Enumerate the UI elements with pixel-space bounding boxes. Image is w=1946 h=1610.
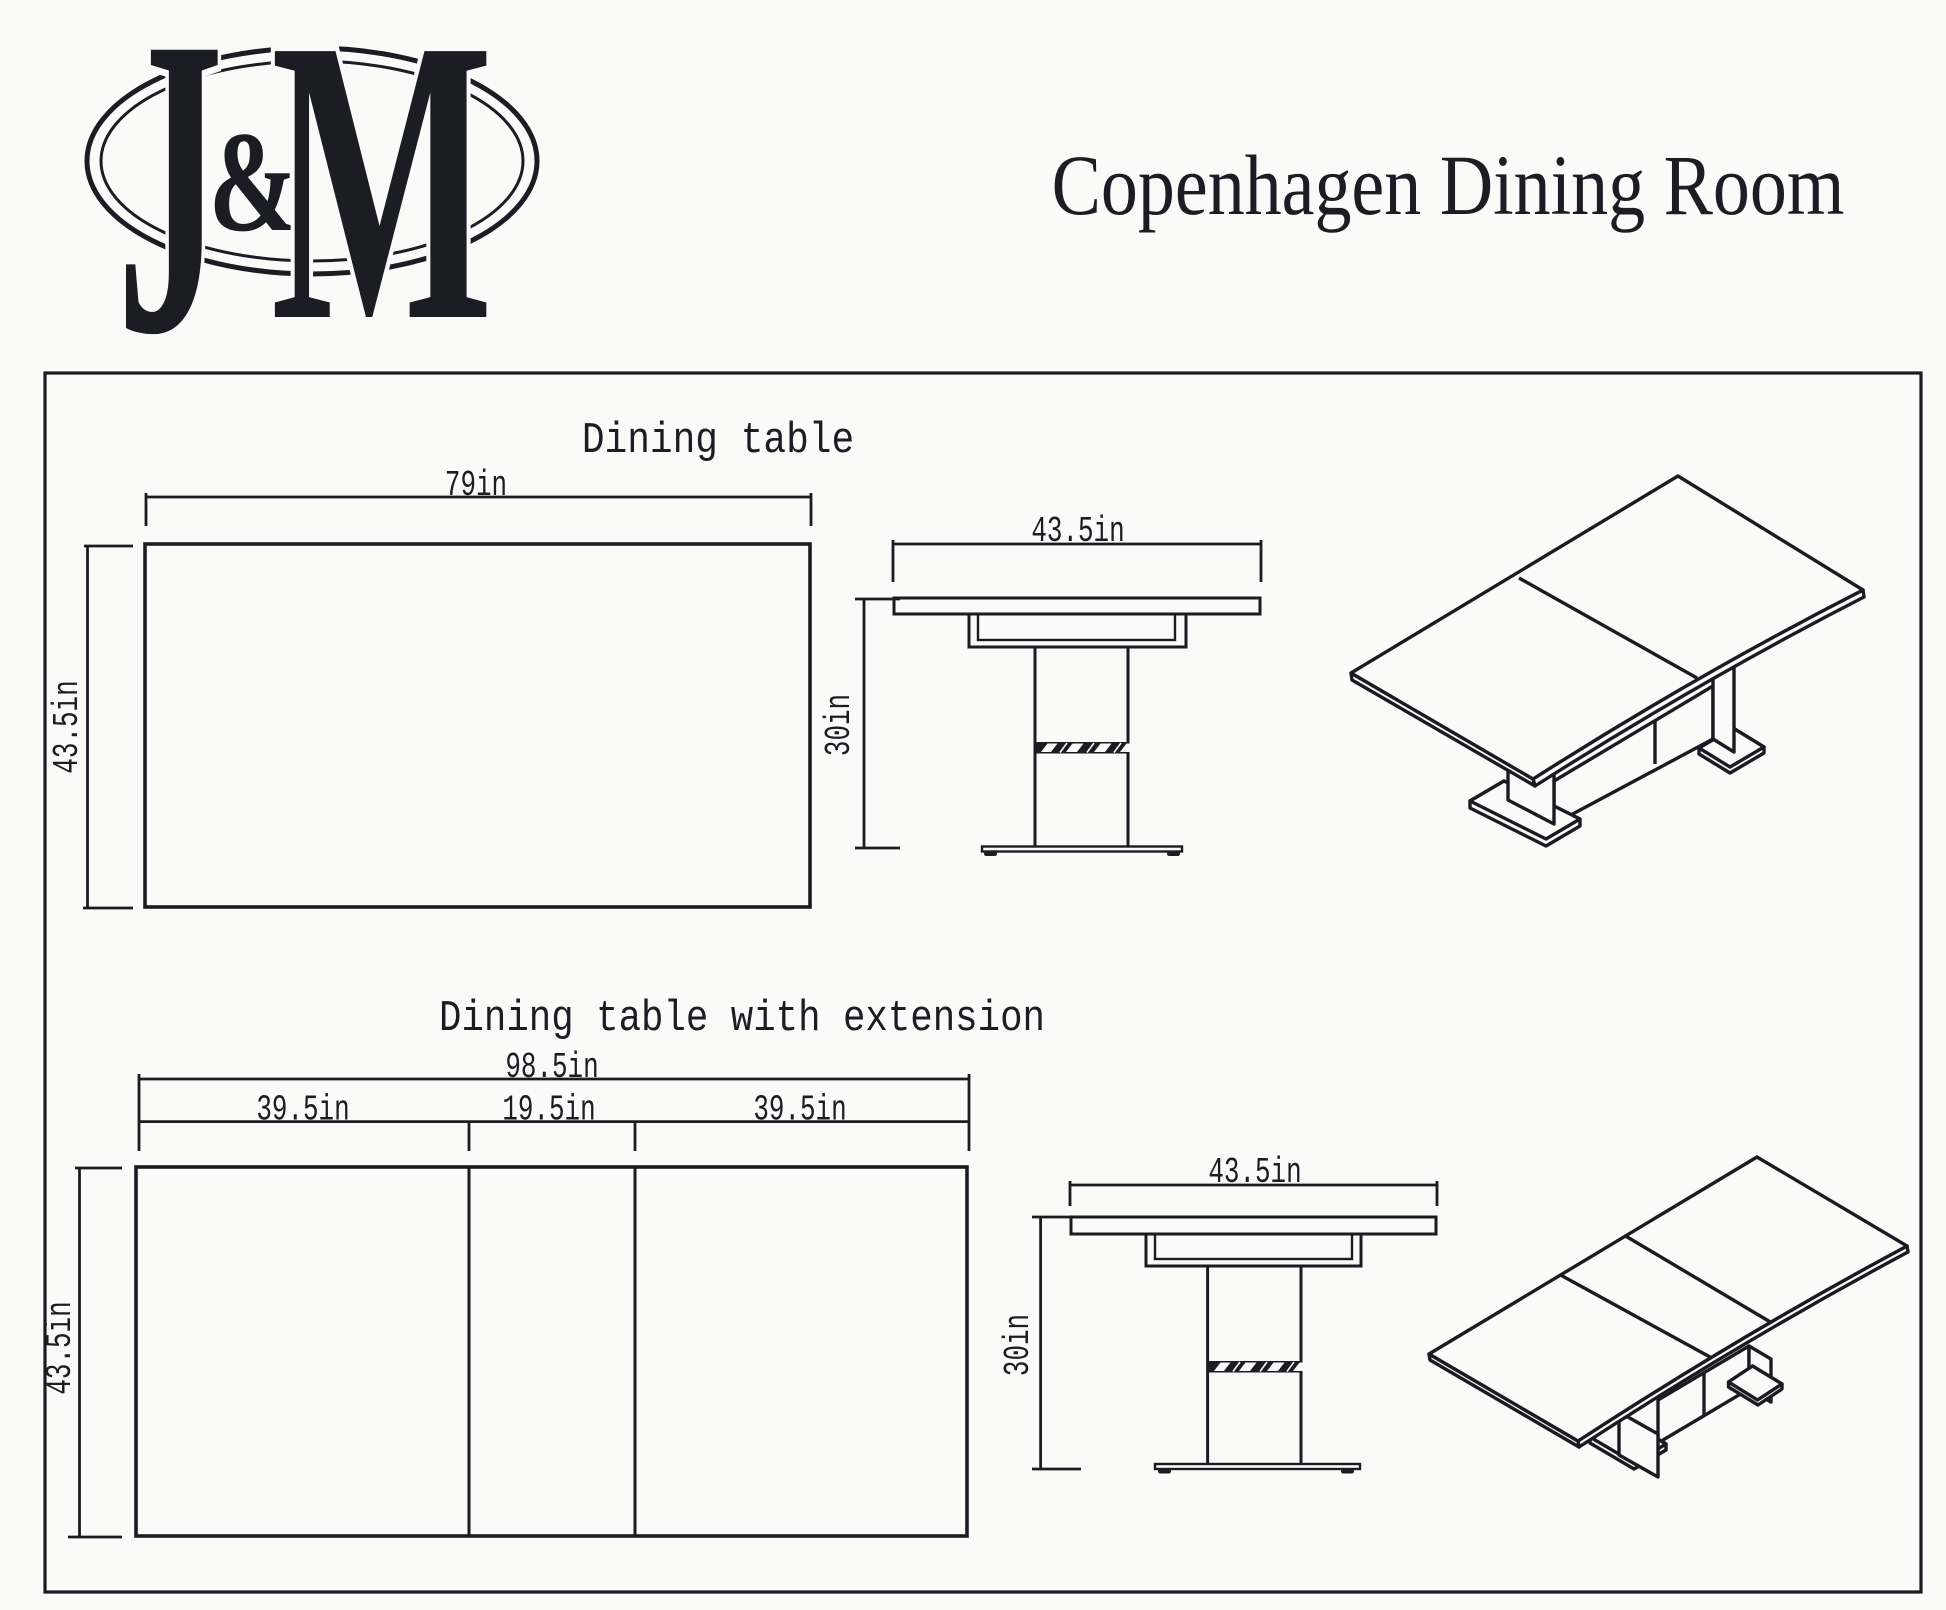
svg-text:43.5in: 43.5in: [41, 1301, 81, 1394]
svg-text:J: J: [116, 0, 223, 424]
svg-text:30in: 30in: [999, 1314, 1039, 1376]
svg-text:39.5in: 39.5in: [753, 1091, 846, 1131]
svg-text:43.5in: 43.5in: [48, 680, 88, 773]
svg-text:30in: 30in: [820, 694, 860, 756]
svg-text:39.5in: 39.5in: [256, 1091, 349, 1131]
svg-text:Dining table with extension: Dining table with extension: [439, 994, 1045, 1044]
svg-text:Copenhagen Dining Room: Copenhagen Dining Room: [1052, 139, 1845, 233]
svg-text:19.5in: 19.5in: [502, 1091, 595, 1131]
svg-text:Dining table: Dining table: [582, 417, 854, 466]
svg-text:98.5in: 98.5in: [505, 1048, 598, 1088]
svg-text:43.5in: 43.5in: [1208, 1153, 1301, 1193]
svg-text:M: M: [271, 0, 493, 405]
svg-text:79in: 79in: [445, 466, 507, 506]
svg-text:43.5in: 43.5in: [1031, 512, 1124, 552]
